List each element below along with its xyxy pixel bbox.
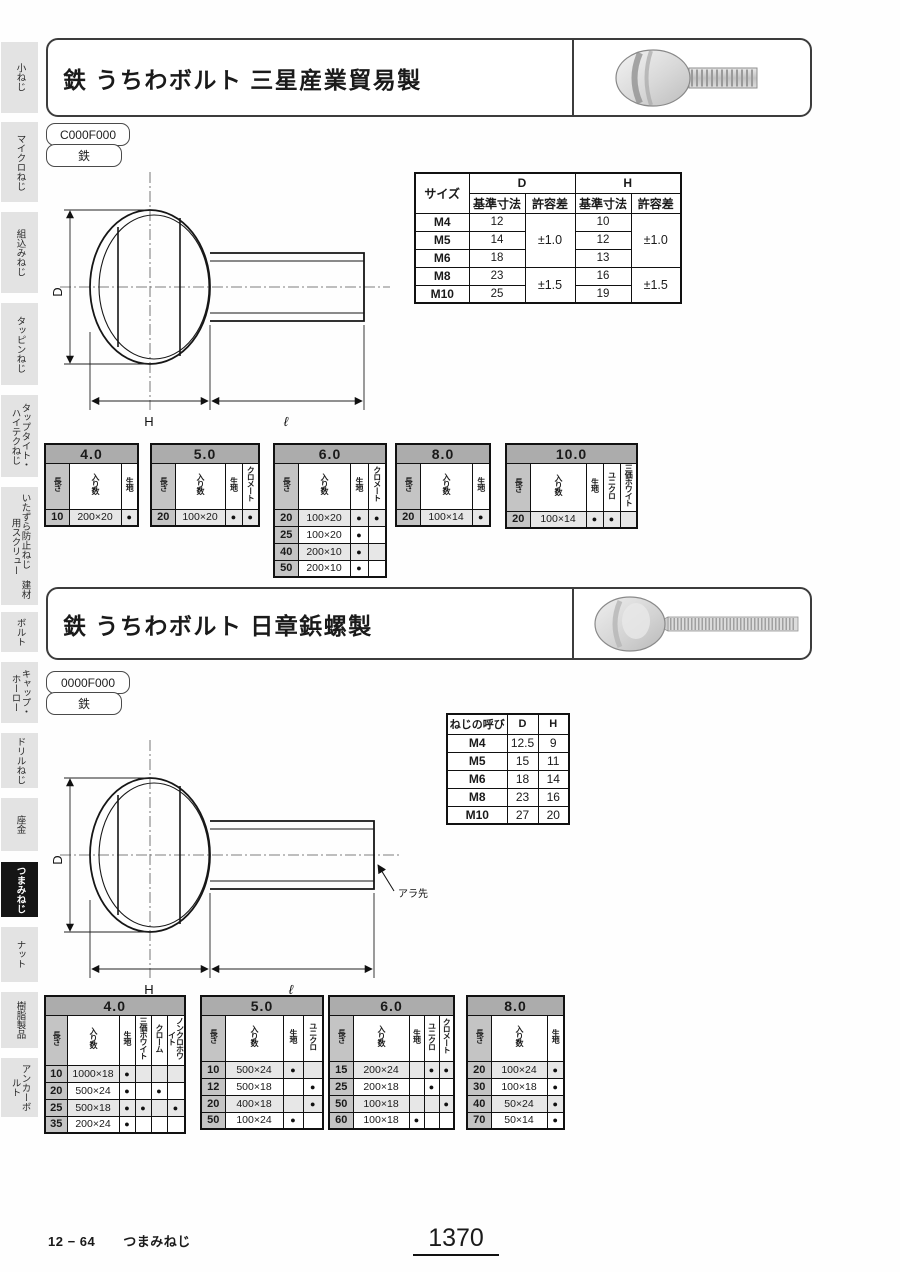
- length-cell: 25: [45, 1099, 67, 1116]
- finish-dot-cell: [439, 1078, 454, 1095]
- dim1-sub: 許容差: [631, 193, 681, 213]
- section1-material: 鉄: [46, 144, 122, 167]
- quantity-cell: 100×18: [353, 1095, 409, 1112]
- size-table-5.0-section2: 5.0長さ入り数生地ユニクロ10500×24●12500×18●20400×18…: [200, 995, 324, 1130]
- size-col-header: 三価ホワイト: [135, 1015, 151, 1065]
- dim2-value: 23: [507, 788, 538, 806]
- product-photo-thumb-screw-long: [588, 595, 808, 653]
- dim2-header: D: [507, 714, 538, 734]
- quantity-cell: 200×20: [69, 509, 121, 526]
- dim2-header: H: [538, 714, 569, 734]
- size-col-header: 入り数: [175, 463, 225, 509]
- length-cell: 15: [329, 1061, 353, 1078]
- quantity-cell: 200×24: [67, 1116, 119, 1133]
- technical-drawing-thumb-bolt-2: アラ先 D H ℓ: [52, 738, 452, 1006]
- length-cell: 20: [396, 509, 420, 526]
- size-col-header: 長さ: [329, 1015, 353, 1061]
- size-table-6.0-section2: 6.0長さ入り数生地ユニクロクロメート15200×24●●25200×18●50…: [328, 995, 455, 1130]
- dim1-value: 10: [575, 213, 631, 231]
- dim1-value: 25: [469, 285, 525, 303]
- dim2-size: M10: [447, 806, 507, 824]
- section1-code-box: C000F000 鉄: [46, 123, 130, 167]
- dim1-value: 19: [575, 285, 631, 303]
- finish-dot-cell: ●: [283, 1112, 303, 1129]
- sidebar-item-8[interactable]: キャップ・ホーロー: [1, 662, 38, 723]
- dim1-col-H: H: [575, 173, 681, 193]
- size-col-header: 長さ: [467, 1015, 491, 1061]
- dim2-value: 14: [538, 770, 569, 788]
- finish-dot-cell: ●: [439, 1095, 454, 1112]
- finish-dot-cell: ●: [242, 509, 259, 526]
- length-cell: 25: [329, 1078, 353, 1095]
- dim-label-length: ℓ: [284, 414, 289, 429]
- centerlines: [60, 740, 402, 978]
- finish-dot-cell: [424, 1095, 439, 1112]
- quantity-cell: 100×14: [530, 511, 586, 528]
- dim1-corner: サイズ: [415, 173, 469, 213]
- sidebar-item-12[interactable]: ナット: [1, 927, 38, 982]
- dimension-table-2: ねじの呼びDHM412.59M51511M61814M82316M102720: [446, 713, 570, 825]
- section1-header-divider: [572, 39, 574, 116]
- finish-dot-cell: ●: [350, 509, 368, 526]
- sidebar-item-10[interactable]: 座金: [1, 798, 38, 851]
- section2-code-box: 0000F000 鉄: [46, 671, 130, 715]
- dim1-col-D: D: [469, 173, 575, 193]
- finish-dot-cell: ●: [409, 1112, 424, 1129]
- section2-product-code: 0000F000: [46, 671, 130, 694]
- finish-dot-cell: ●: [350, 543, 368, 560]
- finish-dot-cell: [167, 1116, 185, 1133]
- size-col-header: ノンクロホワイト: [167, 1015, 185, 1065]
- length-cell: 50: [201, 1112, 225, 1129]
- length-cell: 20: [506, 511, 530, 528]
- dim1-h-tol-upper: ±1.0: [631, 213, 681, 267]
- dim2-size: M4: [447, 734, 507, 752]
- size-col-header: 長さ: [506, 463, 530, 511]
- finish-dot-cell: ●: [586, 511, 603, 528]
- dim-label-D: D: [52, 855, 65, 864]
- dim-label-D: D: [52, 287, 65, 296]
- finish-dot-cell: [368, 560, 386, 577]
- size-table-5.0-section1: 5.0長さ入り数生地クロメート20100×20●●: [150, 443, 260, 527]
- length-cell: 20: [151, 509, 175, 526]
- sidebar-item-1[interactable]: 小ねじ: [1, 42, 38, 113]
- quantity-cell: 50×14: [491, 1112, 547, 1129]
- length-cell: 10: [45, 1065, 67, 1082]
- finish-dot-cell: ●: [547, 1061, 564, 1078]
- size-col-header: 生地: [472, 463, 490, 509]
- length-cell: 30: [467, 1078, 491, 1095]
- finish-dot-cell: [620, 511, 637, 528]
- finish-dot-cell: [135, 1065, 151, 1082]
- dim1-sub: 基準寸法: [469, 193, 525, 213]
- finish-dot-cell: [283, 1095, 303, 1112]
- dim1-value: 12: [469, 213, 525, 231]
- length-cell: 35: [45, 1116, 67, 1133]
- size-col-header: ユニクロ: [424, 1015, 439, 1061]
- length-cell: 20: [201, 1095, 225, 1112]
- dim1-value: 14: [469, 231, 525, 249]
- dim1-d-tol-lower: ±1.5: [525, 267, 575, 303]
- finish-dot-cell: ●: [119, 1099, 135, 1116]
- size-col-header: 長さ: [151, 463, 175, 509]
- dim2-value: 27: [507, 806, 538, 824]
- size-table-title: 8.0: [467, 996, 564, 1015]
- quantity-cell: 100×18: [491, 1078, 547, 1095]
- size-col-header: 生地: [547, 1015, 564, 1061]
- quantity-cell: 500×24: [225, 1061, 283, 1078]
- size-col-header: 長さ: [45, 463, 69, 509]
- dim1-value: 12: [575, 231, 631, 249]
- finish-dot-cell: ●: [303, 1078, 323, 1095]
- catalog-page: 小ねじマイクロねじ組込みねじタッピンねじタップタイト・ ハイテクねじいたずら防止…: [0, 0, 900, 1272]
- dim1-value: 18: [469, 249, 525, 267]
- size-table-title: 6.0: [329, 996, 454, 1015]
- quantity-cell: 500×24: [67, 1082, 119, 1099]
- quantity-cell: 200×10: [298, 543, 350, 560]
- footer-section-code: 12 − 64: [48, 1234, 95, 1249]
- finish-dot-cell: ●: [350, 560, 368, 577]
- size-col-header: 生地: [119, 1015, 135, 1065]
- footer-section-ref: 12 − 64つまみねじ: [48, 1231, 191, 1250]
- sidebar-item-5[interactable]: タップタイト・ ハイテクねじ: [1, 395, 38, 477]
- length-cell: 10: [201, 1061, 225, 1078]
- length-cell: 50: [274, 560, 298, 577]
- finish-dot-cell: [283, 1078, 303, 1095]
- size-table-6.0-section1: 6.0長さ入り数生地クロメート20100×20●●25100×20●40200×…: [273, 443, 387, 578]
- size-col-header: 生地: [586, 463, 603, 511]
- quantity-cell: 50×24: [491, 1095, 547, 1112]
- length-cell: 50: [329, 1095, 353, 1112]
- size-col-header: 入り数: [530, 463, 586, 511]
- finish-dot-cell: ●: [225, 509, 242, 526]
- finish-dot-cell: ●: [119, 1082, 135, 1099]
- finish-dot-cell: [303, 1112, 323, 1129]
- dim2-value: 11: [538, 752, 569, 770]
- dim1-size: M6: [415, 249, 469, 267]
- finish-dot-cell: [167, 1082, 185, 1099]
- length-cell: 20: [45, 1082, 67, 1099]
- finish-dot-cell: [135, 1082, 151, 1099]
- dimension-table-1: サイズ D H 基準寸法 許容差 基準寸法 許容差 M4 12 ±1.0 10 …: [414, 172, 682, 304]
- quantity-cell: 1000×18: [67, 1065, 119, 1082]
- size-table-title: 5.0: [201, 996, 323, 1015]
- length-cell: 70: [467, 1112, 491, 1129]
- sidebar-item-7[interactable]: ボルト: [1, 612, 38, 652]
- sidebar-item-13[interactable]: 樹脂製品: [1, 992, 38, 1048]
- dim1-size: M5: [415, 231, 469, 249]
- dim1-sub: 基準寸法: [575, 193, 631, 213]
- length-cell: 40: [274, 543, 298, 560]
- size-col-header: 生地: [283, 1015, 303, 1061]
- size-col-header: 長さ: [45, 1015, 67, 1065]
- finish-dot-cell: ●: [424, 1061, 439, 1078]
- section2-title: 鉄 うちわボルト 日章鋲螺製: [63, 607, 373, 641]
- finish-dot-cell: [439, 1112, 454, 1129]
- size-table-title: 4.0: [45, 444, 138, 463]
- finish-dot-cell: [151, 1099, 167, 1116]
- size-col-header: 生地: [121, 463, 138, 509]
- size-col-header: クロメート: [439, 1015, 454, 1061]
- quantity-cell: 100×20: [298, 509, 350, 526]
- finish-dot-cell: [409, 1078, 424, 1095]
- dim1-value: 23: [469, 267, 525, 285]
- technical-drawing-thumb-bolt-1: D H ℓ: [52, 170, 397, 438]
- size-table-title: 6.0: [274, 444, 386, 463]
- length-cell: 40: [467, 1095, 491, 1112]
- finish-dot-cell: ●: [151, 1082, 167, 1099]
- size-col-header: 長さ: [201, 1015, 225, 1061]
- dim1-d-tol-upper: ±1.0: [525, 213, 575, 267]
- quantity-cell: 100×14: [420, 509, 472, 526]
- size-table-title: 8.0: [396, 444, 490, 463]
- size-col-header: 三価ホワイト: [620, 463, 637, 511]
- dim1-size: M10: [415, 285, 469, 303]
- sidebar-item-11[interactable]: つまみねじ: [1, 862, 38, 917]
- size-table-title: 10.0: [506, 444, 637, 463]
- finish-dot-cell: [424, 1112, 439, 1129]
- screw-head: [616, 50, 690, 106]
- finish-dot-cell: ●: [350, 526, 368, 543]
- sidebar-item-2[interactable]: マイクロねじ: [1, 122, 38, 202]
- size-col-header: 入り数: [225, 1015, 283, 1061]
- finish-dot-cell: ●: [135, 1099, 151, 1116]
- finish-dot-cell: ●: [439, 1061, 454, 1078]
- section1-product-code: C000F000: [46, 123, 130, 146]
- quantity-cell: 400×18: [225, 1095, 283, 1112]
- dim2-size: M6: [447, 770, 507, 788]
- size-table-8.0-section1: 8.0長さ入り数生地20100×14●: [395, 443, 491, 527]
- size-col-header: 生地: [350, 463, 368, 509]
- screw-head: [595, 597, 665, 651]
- dimension-lines: [64, 210, 364, 410]
- dim2-size: M8: [447, 788, 507, 806]
- size-table-4.0-section2: 4.0長さ入り数生地三価ホワイトクロームノンクロホワイト101000×18●20…: [44, 995, 186, 1134]
- dim1-h-tol-lower: ±1.5: [631, 267, 681, 303]
- finish-dot-cell: [151, 1065, 167, 1082]
- size-table-10.0-section1: 10.0長さ入り数生地ユニクロ三価ホワイト20100×14●●: [505, 443, 638, 529]
- size-col-header: 生地: [225, 463, 242, 509]
- size-col-header: 長さ: [274, 463, 298, 509]
- finish-dot-cell: ●: [603, 511, 620, 528]
- quantity-cell: 200×10: [298, 560, 350, 577]
- dim1-size: M4: [415, 213, 469, 231]
- finish-dot-cell: ●: [167, 1099, 185, 1116]
- length-cell: 25: [274, 526, 298, 543]
- quantity-cell: 100×20: [298, 526, 350, 543]
- finish-dot-cell: ●: [119, 1065, 135, 1082]
- finish-dot-cell: [409, 1095, 424, 1112]
- sidebar-item-9[interactable]: ドリルねじ: [1, 733, 38, 788]
- sidebar-item-6[interactable]: いたずら防止ねじ 建材用スクリュー: [1, 487, 38, 605]
- finish-dot-cell: ●: [283, 1061, 303, 1078]
- dim2-value: 16: [538, 788, 569, 806]
- dim1-sub: 許容差: [525, 193, 575, 213]
- finish-dot-cell: [135, 1116, 151, 1133]
- finish-dot-cell: [303, 1061, 323, 1078]
- finish-dot-cell: [368, 543, 386, 560]
- dimension-lines: [64, 778, 374, 978]
- finish-dot-cell: [151, 1116, 167, 1133]
- quantity-cell: 200×24: [353, 1061, 409, 1078]
- length-cell: 20: [274, 509, 298, 526]
- size-col-header: ユニクロ: [303, 1015, 323, 1061]
- finish-dot-cell: ●: [547, 1095, 564, 1112]
- finish-dot-cell: ●: [303, 1095, 323, 1112]
- size-table-8.0-section2: 8.0長さ入り数生地20100×24●30100×18●4050×24●7050…: [466, 995, 565, 1130]
- section1-title: 鉄 うちわボルト 三星産業貿易製: [63, 61, 422, 95]
- dim2-value: 9: [538, 734, 569, 752]
- finish-dot-cell: ●: [119, 1116, 135, 1133]
- quantity-cell: 500×18: [225, 1078, 283, 1095]
- dim2-size: M5: [447, 752, 507, 770]
- finish-dot-cell: ●: [472, 509, 490, 526]
- sidebar-item-14[interactable]: アンカーボルト: [1, 1058, 38, 1117]
- dim2-value: 15: [507, 752, 538, 770]
- product-photo-thumb-screw-short: [593, 48, 803, 108]
- dim2-header: ねじの呼び: [447, 714, 507, 734]
- quantity-cell: 100×24: [491, 1061, 547, 1078]
- size-col-header: 入り数: [298, 463, 350, 509]
- dim2-value: 18: [507, 770, 538, 788]
- quantity-cell: 100×24: [225, 1112, 283, 1129]
- size-col-header: 長さ: [396, 463, 420, 509]
- size-table-title: 4.0: [45, 996, 185, 1015]
- quantity-cell: 100×20: [175, 509, 225, 526]
- finish-dot-cell: ●: [547, 1112, 564, 1129]
- screw-shaft-long: [654, 617, 798, 631]
- page-number: 1370: [413, 1224, 499, 1256]
- dim1-value: 13: [575, 249, 631, 267]
- length-cell: 60: [329, 1112, 353, 1129]
- size-col-header: 入り数: [69, 463, 121, 509]
- size-col-header: 入り数: [491, 1015, 547, 1061]
- dim-label-H: H: [144, 414, 153, 429]
- dim2-value: 20: [538, 806, 569, 824]
- dim1-value: 16: [575, 267, 631, 285]
- sidebar-item-3[interactable]: 組込みねじ: [1, 212, 38, 293]
- size-col-header: 入り数: [353, 1015, 409, 1061]
- rough-tip-callout: アラ先: [378, 865, 428, 900]
- finish-dot-cell: ●: [547, 1078, 564, 1095]
- size-col-header: 生地: [409, 1015, 424, 1061]
- finish-dot-cell: [167, 1065, 185, 1082]
- dim2-value: 12.5: [507, 734, 538, 752]
- size-table-title: 5.0: [151, 444, 259, 463]
- finish-dot-cell: ●: [121, 509, 138, 526]
- finish-dot-cell: [368, 526, 386, 543]
- size-col-header: クロメート: [368, 463, 386, 509]
- size-col-header: クロメート: [242, 463, 259, 509]
- quantity-cell: 500×18: [67, 1099, 119, 1116]
- sidebar-item-4[interactable]: タッピンねじ: [1, 303, 38, 385]
- tip-label: アラ先: [398, 888, 428, 900]
- size-col-header: ユニクロ: [603, 463, 620, 511]
- size-table-4.0-section1: 4.0長さ入り数生地10200×20●: [44, 443, 139, 527]
- size-col-header: 入り数: [67, 1015, 119, 1065]
- finish-dot-cell: ●: [368, 509, 386, 526]
- quantity-cell: 100×18: [353, 1112, 409, 1129]
- section2-header-box: 鉄 うちわボルト 日章鋲螺製: [46, 587, 812, 660]
- length-cell: 20: [467, 1061, 491, 1078]
- section2-material: 鉄: [46, 692, 122, 715]
- quantity-cell: 200×18: [353, 1078, 409, 1095]
- length-cell: 12: [201, 1078, 225, 1095]
- size-col-header: クローム: [151, 1015, 167, 1065]
- screw-shaft-short: [689, 68, 757, 88]
- centerlines: [60, 172, 390, 410]
- section2-header-divider: [572, 588, 574, 659]
- finish-dot-cell: [409, 1061, 424, 1078]
- length-cell: 10: [45, 509, 69, 526]
- finish-dot-cell: ●: [424, 1078, 439, 1095]
- footer-section-label: つまみねじ: [123, 1234, 191, 1249]
- section1-header-box: 鉄 うちわボルト 三星産業貿易製: [46, 38, 812, 117]
- dim1-size: M8: [415, 267, 469, 285]
- size-col-header: 入り数: [420, 463, 472, 509]
